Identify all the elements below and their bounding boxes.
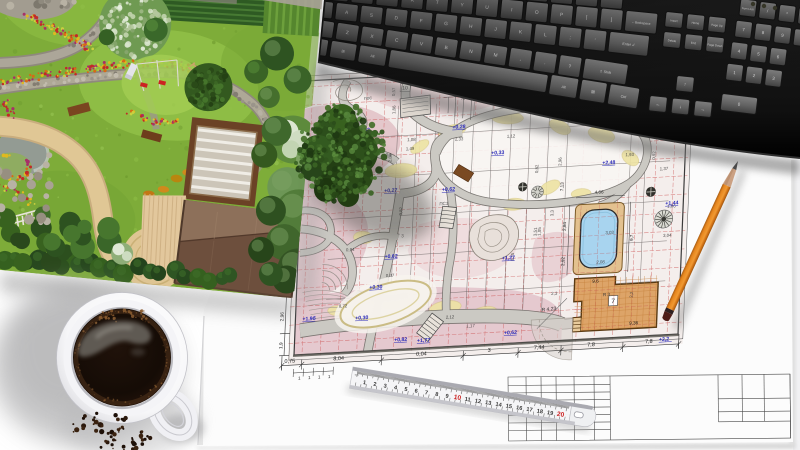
svg-text:2,96: 2,96 — [557, 157, 562, 166]
svg-text:16: 16 — [516, 405, 523, 412]
svg-text:11: 11 — [464, 397, 471, 404]
svg-text:19: 19 — [546, 410, 553, 417]
svg-text:7: 7 — [611, 298, 615, 305]
svg-text:1,49: 1,49 — [406, 146, 415, 151]
svg-text:17: 17 — [526, 407, 533, 414]
svg-text:10: 10 — [453, 394, 462, 402]
svg-text:2,12: 2,12 — [446, 314, 455, 319]
svg-text:1,08: 1,08 — [407, 137, 416, 142]
svg-text:2,84: 2,84 — [562, 221, 567, 231]
svg-text:0,94: 0,94 — [346, 247, 355, 252]
svg-text:0,37: 0,37 — [386, 273, 395, 278]
svg-text:пос: пос — [364, 95, 373, 101]
svg-text:2,3: 2,3 — [551, 291, 558, 296]
svg-text:18: 18 — [536, 409, 543, 416]
svg-text:1,86: 1,86 — [391, 105, 396, 114]
svg-text:R 3: R 3 — [603, 292, 611, 297]
svg-text:0,75: 0,75 — [284, 358, 295, 365]
svg-text:2,2: 2,2 — [629, 291, 634, 298]
svg-text:9,36: 9,36 — [629, 320, 639, 326]
svg-text:0,04: 0,04 — [416, 351, 427, 358]
svg-text:3,51: 3,51 — [533, 227, 538, 236]
svg-text:1,9: 1,9 — [278, 342, 284, 349]
svg-text:13: 13 — [485, 400, 492, 407]
svg-text:2,08: 2,08 — [596, 259, 605, 264]
svg-text:8,04: 8,04 — [333, 356, 344, 363]
svg-text:3,04: 3,04 — [663, 233, 672, 238]
svg-text:9,6: 9,6 — [592, 278, 599, 283]
svg-text:15: 15 — [505, 403, 512, 410]
svg-text:7,13: 7,13 — [559, 182, 564, 192]
svg-text:3,03: 3,03 — [605, 230, 614, 235]
svg-text:3: 3 — [488, 348, 491, 354]
svg-text:20: 20 — [556, 411, 565, 419]
svg-text:7,8: 7,8 — [645, 339, 653, 345]
svg-text:ПС1: ПС1 — [439, 201, 449, 207]
svg-text:7,44: 7,44 — [534, 345, 545, 352]
svg-text:9,7: 9,7 — [629, 234, 634, 241]
svg-text:7,8: 7,8 — [587, 342, 595, 348]
svg-text:1,12: 1,12 — [507, 133, 516, 138]
svg-text:8,72: 8,72 — [339, 303, 348, 308]
svg-text:2,33: 2,33 — [455, 136, 464, 141]
svg-text:12: 12 — [474, 398, 481, 405]
svg-text:2,92: 2,92 — [560, 256, 565, 266]
svg-text:1,93: 1,93 — [625, 152, 634, 157]
svg-text:3,3: 3,3 — [549, 209, 554, 216]
svg-text:4,66: 4,66 — [595, 189, 605, 195]
svg-text:1,37: 1,37 — [660, 166, 669, 171]
svg-text:0,82: 0,82 — [534, 164, 539, 173]
svg-text:1,17: 1,17 — [466, 323, 475, 328]
